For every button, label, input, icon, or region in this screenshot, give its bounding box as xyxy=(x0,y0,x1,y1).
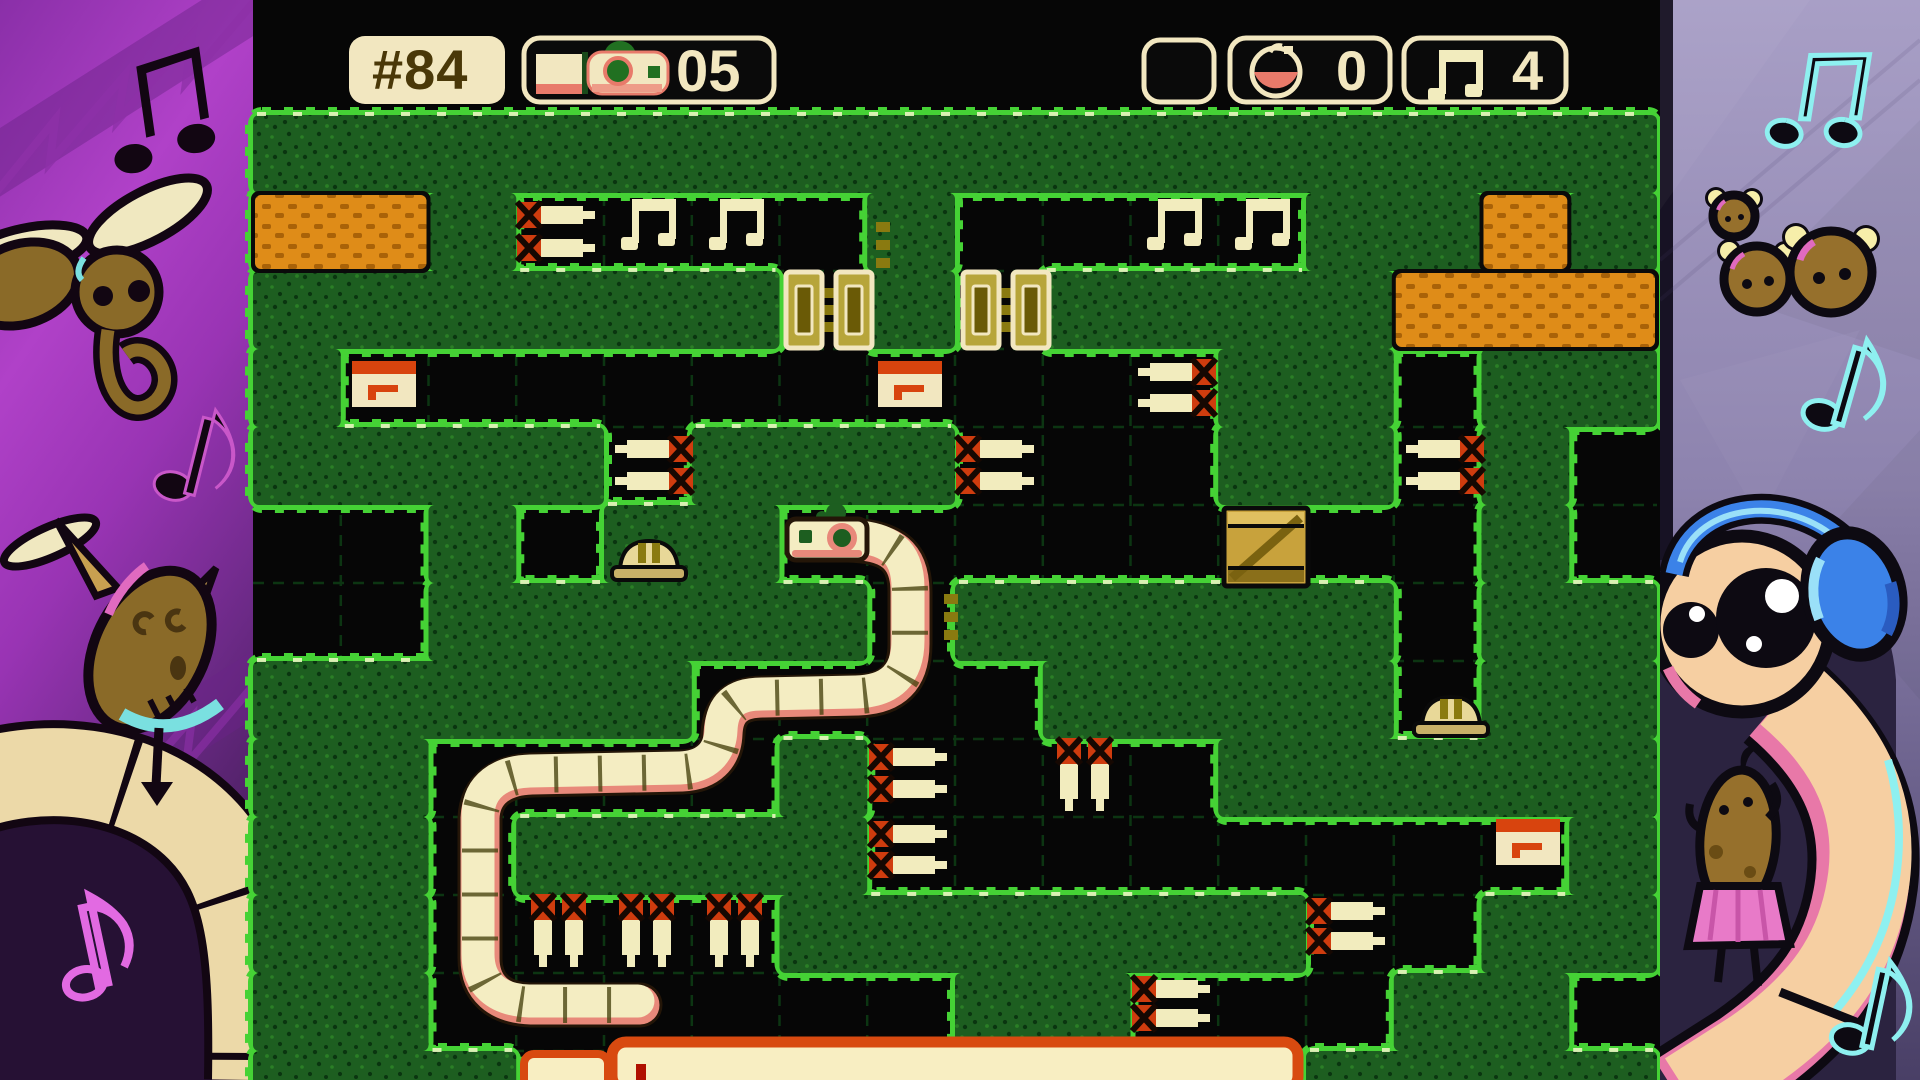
svg-text:05: 05 xyxy=(676,39,741,104)
svg-text:0: 0 xyxy=(1336,39,1367,102)
svg-text:#84: #84 xyxy=(372,38,468,101)
svg-text:4: 4 xyxy=(1512,39,1543,102)
